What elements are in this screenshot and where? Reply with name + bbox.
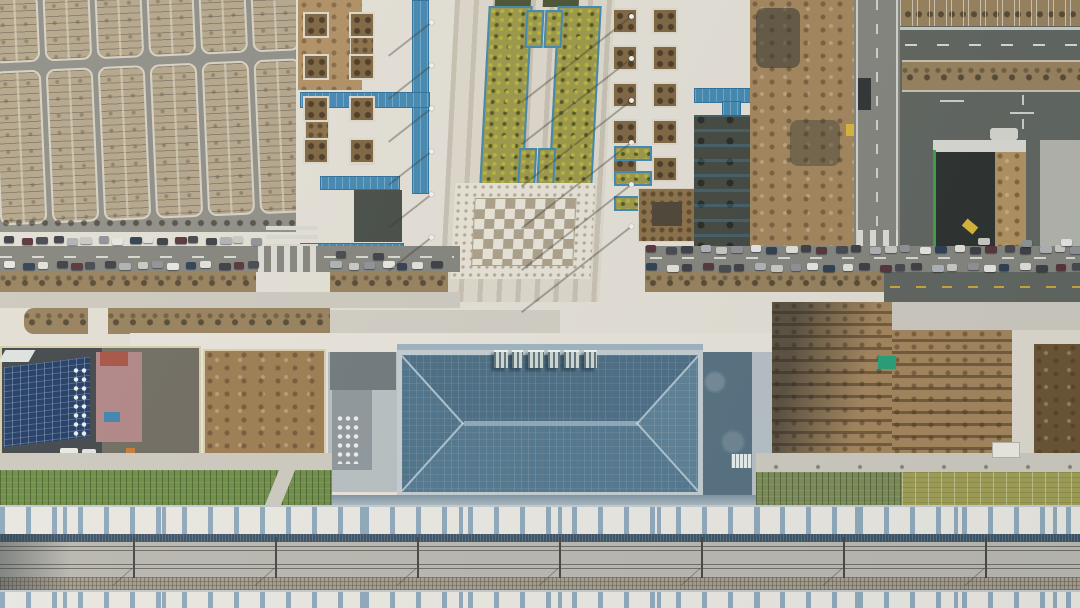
parking-island <box>94 0 144 59</box>
car <box>167 263 179 270</box>
car <box>220 237 232 244</box>
car <box>851 245 861 252</box>
green-tarp <box>878 356 896 369</box>
car <box>999 264 1009 271</box>
car <box>251 238 262 245</box>
dark-material-stack <box>354 190 402 242</box>
catenary-mast <box>133 537 135 578</box>
car <box>984 265 996 272</box>
platform-canopy-south <box>0 590 1080 608</box>
yellow-center-dashes <box>890 286 1080 288</box>
lamp-post <box>629 140 634 145</box>
car <box>36 237 48 244</box>
tree-pit <box>349 54 375 80</box>
car <box>970 247 981 254</box>
tree-pit <box>303 12 329 38</box>
car <box>880 265 892 272</box>
tree-pit <box>652 156 678 182</box>
car <box>336 251 346 258</box>
pit-top-concrete <box>933 140 1026 152</box>
planter-stub <box>543 10 563 48</box>
car <box>38 262 48 269</box>
car <box>859 263 870 270</box>
station-right-annex <box>703 352 752 497</box>
car <box>4 261 15 268</box>
parking-island <box>198 0 248 55</box>
car <box>22 238 33 245</box>
parking-island <box>46 67 100 223</box>
crosswalk-west <box>258 246 322 272</box>
lamp-post <box>429 235 434 240</box>
car <box>682 264 692 271</box>
car <box>157 238 168 245</box>
car <box>130 237 142 244</box>
tree-pit <box>349 12 375 38</box>
platform-canopy-north <box>0 505 1080 536</box>
car <box>330 261 342 268</box>
car <box>85 262 95 269</box>
car <box>1061 239 1072 246</box>
dark-material <box>652 202 682 226</box>
tower-crane-base <box>858 78 871 110</box>
car <box>1005 245 1015 252</box>
car <box>766 247 777 254</box>
faint-median-band <box>330 310 560 333</box>
lane-mark <box>940 100 964 102</box>
roof-slopes <box>402 355 698 492</box>
roadside-hedge-east <box>645 272 887 292</box>
car <box>666 247 677 254</box>
car <box>233 236 243 243</box>
car <box>175 237 187 244</box>
car <box>920 247 931 254</box>
lamp-post <box>629 182 634 187</box>
rooftop-grille-unit <box>731 454 753 468</box>
car <box>143 236 153 243</box>
excavator <box>962 219 979 235</box>
road-center-dashes <box>876 0 878 226</box>
car <box>836 246 848 253</box>
lane-dashes <box>905 44 1080 46</box>
station-sign-glyph <box>528 350 544 368</box>
tree-pit <box>303 96 329 122</box>
parking-island <box>98 65 152 221</box>
car <box>1022 240 1032 247</box>
catenary-mast <box>985 537 987 578</box>
car <box>1056 264 1066 271</box>
sidewalk <box>0 292 460 308</box>
station-sign-glyph <box>564 350 579 368</box>
parking-island <box>202 61 256 217</box>
car <box>248 261 259 268</box>
car <box>701 245 711 252</box>
parking-island <box>250 0 300 52</box>
parking-lot <box>0 0 332 232</box>
car <box>119 263 131 270</box>
car <box>900 245 910 252</box>
station-sign-glyph <box>548 350 560 368</box>
tree-pit <box>652 8 678 34</box>
car <box>911 263 922 270</box>
parking-island <box>150 63 204 219</box>
car <box>681 246 693 253</box>
car <box>978 238 990 245</box>
white-curb-frame-top <box>1012 330 1080 344</box>
south-walkway <box>0 453 332 470</box>
south-walkway-east <box>756 453 1080 472</box>
white-site-hut <box>992 442 1020 458</box>
roadside-hedge <box>330 272 448 292</box>
catenary-mast <box>275 537 277 578</box>
car <box>234 262 244 269</box>
car <box>1070 247 1080 254</box>
car <box>646 263 657 270</box>
planter-stub <box>524 10 544 48</box>
station-south-shadow <box>328 495 772 505</box>
crosswalk-vertical <box>266 226 318 246</box>
car <box>823 265 835 272</box>
car <box>816 247 827 254</box>
median-hedge-long <box>24 308 88 334</box>
car <box>412 262 423 269</box>
red-roof-section <box>100 352 128 366</box>
lamp-post <box>629 14 634 19</box>
lamp-post <box>429 149 434 154</box>
dark-soil-blob <box>790 120 840 166</box>
car <box>751 245 761 252</box>
car <box>1036 265 1048 272</box>
catenary-mast <box>701 537 703 578</box>
car <box>105 261 116 268</box>
lamp-post <box>429 63 434 68</box>
median-hedge <box>902 60 1080 92</box>
car <box>646 245 656 252</box>
car <box>955 245 965 252</box>
lamp-post <box>429 20 434 25</box>
station-sign-glyph <box>512 350 523 368</box>
tree-pit <box>652 82 678 108</box>
car <box>80 237 92 244</box>
car <box>791 264 801 271</box>
green-strip-east-yellow <box>902 472 1080 505</box>
station-left-annex <box>328 352 397 492</box>
planter-bar <box>614 146 652 161</box>
car <box>431 261 443 268</box>
car <box>99 236 109 243</box>
parking-island <box>0 70 47 226</box>
car <box>703 263 714 270</box>
car <box>667 265 679 272</box>
fenced-dirt-yard <box>203 349 326 470</box>
parking-islands-group <box>0 0 332 232</box>
catenary-mast <box>559 537 561 578</box>
lamp-post <box>629 224 634 229</box>
car <box>57 261 68 268</box>
car <box>786 246 798 253</box>
car <box>843 264 853 271</box>
car <box>71 263 83 270</box>
blue-tarp <box>104 412 120 422</box>
checkerboard-paving <box>471 198 577 266</box>
car <box>206 238 217 245</box>
car <box>373 253 384 260</box>
annex-dark-roof <box>330 352 396 390</box>
earthworks-shadow <box>772 302 922 453</box>
car <box>870 247 881 254</box>
car <box>54 236 64 243</box>
car <box>731 246 743 253</box>
car <box>67 238 78 245</box>
white-curb-frame <box>1012 330 1034 453</box>
pale-pavement <box>1040 140 1080 252</box>
lamp-post <box>429 106 434 111</box>
tree-pit <box>612 119 638 145</box>
car <box>807 263 818 270</box>
track-shadow-west <box>0 534 70 590</box>
median-hedge-long <box>108 308 330 334</box>
parking-hedge-row <box>900 0 1080 26</box>
car <box>719 265 731 272</box>
car <box>885 246 897 253</box>
machine-yellow <box>846 124 854 136</box>
stall-boundary-line <box>900 27 1080 30</box>
car <box>985 246 997 253</box>
car <box>138 262 148 269</box>
aerial-photo-railway-station-construction <box>0 0 1080 608</box>
annex-equipment <box>336 414 360 464</box>
tree-pit <box>349 96 375 122</box>
car <box>1020 247 1031 254</box>
car <box>801 245 811 252</box>
car <box>947 264 957 271</box>
roof-ridge <box>464 421 639 426</box>
plaza-center-strip <box>439 0 615 302</box>
car <box>755 263 766 270</box>
car <box>1020 263 1031 270</box>
lamp-post <box>629 56 634 61</box>
car <box>1072 263 1080 270</box>
station-main-roof <box>397 350 703 497</box>
green-strip-east-gray <box>756 472 902 505</box>
car <box>716 247 727 254</box>
car <box>200 261 211 268</box>
parking-island <box>42 0 92 61</box>
car <box>1040 246 1052 253</box>
tree-pit <box>303 54 329 80</box>
tree-pit <box>612 45 638 71</box>
tree-pit <box>303 138 329 164</box>
car <box>23 263 35 270</box>
car <box>771 265 783 272</box>
car <box>935 246 947 253</box>
road-dashes <box>0 256 252 258</box>
car <box>895 264 905 271</box>
railway-tracks <box>0 542 1080 577</box>
vertical-road <box>854 0 900 252</box>
car <box>112 238 123 245</box>
station-sign-glyph <box>584 350 597 368</box>
tree-pit <box>652 119 678 145</box>
roadside-hedge <box>0 272 256 292</box>
road-dashes <box>650 257 1075 259</box>
road-edge-line <box>896 0 898 252</box>
car <box>932 265 944 272</box>
road-edge-line <box>856 0 858 252</box>
station-sign-glyph <box>494 350 508 368</box>
car <box>186 262 196 269</box>
parking-island <box>0 0 40 64</box>
car <box>364 262 375 269</box>
car <box>968 263 979 270</box>
car <box>1055 245 1065 252</box>
concrete-pump-truck <box>990 128 1018 140</box>
excavation-strip <box>694 115 750 252</box>
dark-soil-bed <box>1034 344 1080 453</box>
rooftop-units <box>72 366 88 438</box>
parking-island <box>146 0 196 57</box>
tree-pit <box>349 138 375 164</box>
dark-soil-blob <box>756 8 800 68</box>
crosswalk <box>857 230 898 247</box>
car <box>4 236 14 243</box>
car <box>349 263 359 270</box>
catenary-mast <box>843 537 845 578</box>
car <box>188 236 198 243</box>
lamp-post <box>429 192 434 197</box>
car <box>152 261 163 268</box>
car <box>734 264 744 271</box>
pit-slope <box>995 152 1026 248</box>
tree-pit <box>652 45 678 71</box>
car <box>219 263 231 270</box>
catenary-mast <box>417 537 419 578</box>
track-fence-strip <box>0 534 1080 542</box>
lamp-post <box>629 98 634 103</box>
